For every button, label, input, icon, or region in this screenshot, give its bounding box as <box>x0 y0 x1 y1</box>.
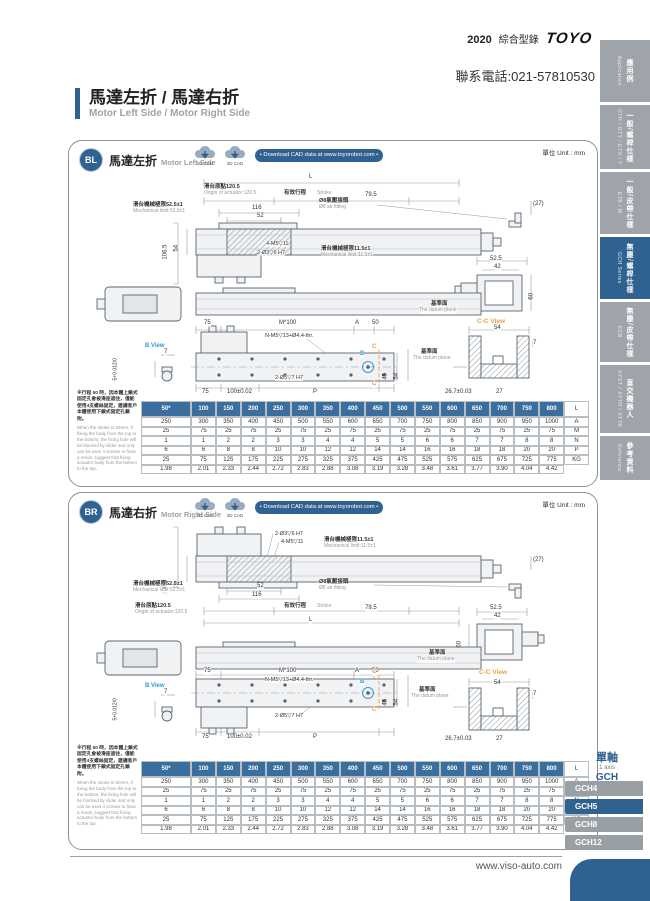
table-cell: 3.90 <box>490 825 515 835</box>
unit-label: 單位 Unit : mm <box>542 147 585 157</box>
mech-limit-11-en: Mechanical limit:11.5±1 <box>324 544 376 550</box>
table-cell: 16 <box>415 806 440 816</box>
table-cell: 675 <box>490 455 515 465</box>
mech-limit-52-en: Mechanical limit:52.5±1 <box>133 588 185 594</box>
table-cell: 75 <box>340 427 365 437</box>
toyo-logo: TOYO <box>545 30 594 47</box>
dim-27-paren: (27) <box>533 557 544 564</box>
tab-gth-gty-eth-y[interactable]: GTH / GTY / ETH / Y 一般/螺桿仕樣 <box>600 105 650 169</box>
cc-view-label: C-C View <box>479 669 507 676</box>
table-cell: 725 <box>514 455 539 465</box>
table-cell: 3 <box>291 796 316 806</box>
contact-phone: 聯系電話:021-57810530 <box>456 66 595 85</box>
series-menu-title: 單軸 1 axis GCH <box>568 752 646 783</box>
c-marker-top: C <box>372 344 376 351</box>
table-cell: 75 <box>490 787 515 797</box>
dim-P: P <box>313 734 317 741</box>
table-cell: 75 <box>241 427 266 437</box>
dim-52: 52 <box>257 583 264 590</box>
table-cell: 6 <box>141 806 191 816</box>
table-cell: 100 <box>191 761 216 777</box>
table-cell: 25 <box>141 427 191 437</box>
table-cell: 1 <box>141 796 191 806</box>
mech-limit-11-en: Mechanical limit:11.5±1 <box>321 253 373 259</box>
dim-L: L <box>309 174 312 181</box>
table-cell: 325 <box>315 815 340 825</box>
table-cell: 450 <box>365 401 390 417</box>
table-cell: 750 <box>415 777 440 787</box>
table-cell: 425 <box>365 815 390 825</box>
table-cell: 25 <box>415 427 440 437</box>
footer-divider <box>70 856 562 857</box>
table-cell: 8 <box>514 436 539 446</box>
table-cell: 8 <box>514 796 539 806</box>
table-cell: 775 <box>539 455 564 465</box>
table-cell: 400 <box>340 761 365 777</box>
table-cell: 8 <box>241 806 266 816</box>
table-cell: 475 <box>390 455 415 465</box>
hole-2o3: 2-Ø3▽6 H7 <box>257 250 285 256</box>
table-cell: 175 <box>241 455 266 465</box>
table-cell: 75 <box>191 787 216 797</box>
table-cell: 25 <box>266 427 291 437</box>
table-cell: 2.88 <box>315 465 340 475</box>
tab-label-en: ETB / M <box>616 192 622 214</box>
c-marker-top: C <box>372 669 376 676</box>
dim-7-bview: 7 <box>164 689 167 696</box>
table-cell: 2.33 <box>216 465 241 475</box>
dim-L: L <box>309 617 312 624</box>
table-cell: 20 <box>514 806 539 816</box>
table-cell: 675 <box>490 815 515 825</box>
table-cell: 7 <box>465 796 490 806</box>
table-cell: 250 <box>141 777 191 787</box>
table-cell: 2 <box>241 796 266 806</box>
table-cell: 850 <box>465 777 490 787</box>
table-cell: 4 <box>340 436 365 446</box>
tab-ecb[interactable]: ECB 無塵/皮帶仕樣 <box>600 302 650 362</box>
table-cell: 800 <box>440 417 465 427</box>
cloud-download-icon <box>192 497 218 512</box>
table-cell: 3.19 <box>365 465 390 475</box>
table-cell: 150 <box>216 401 241 417</box>
hole-2o5: 2-Ø5▽7 H7 <box>275 375 303 381</box>
table-cell: 18 <box>465 806 490 816</box>
table-cell: 325 <box>315 455 340 465</box>
table-cell: 75 <box>390 427 415 437</box>
table-cell: 800 <box>539 401 564 417</box>
dim-54-cc: 54 <box>494 680 501 687</box>
gch4-button[interactable]: GCH4 <box>565 781 643 796</box>
table-cell: 3.77 <box>465 825 490 835</box>
hole-2o5: 2-Ø5▽7 H7 <box>275 713 303 719</box>
table-cell: 3.08 <box>340 825 365 835</box>
tab-label-en: XYGT / XYTH / XYTB <box>616 370 622 427</box>
table-cell: 800 <box>539 761 564 777</box>
table-cell: 6 <box>415 436 440 446</box>
dim-45: 45 <box>382 373 389 380</box>
table-cell: 2.44 <box>241 465 266 475</box>
table-cell: 650 <box>465 401 490 417</box>
table-cell: 950 <box>514 417 539 427</box>
cad-3d-download[interactable]: 3D CAD <box>219 497 251 518</box>
table-cell: 550 <box>415 761 440 777</box>
footer-website: www.viso-auto.com <box>420 861 562 872</box>
table-cell: 600 <box>440 761 465 777</box>
table-cell: 8 <box>539 436 564 446</box>
table-cell: 300 <box>291 761 316 777</box>
dim-54-cc: 54 <box>494 325 501 332</box>
stroke-table: 有效行程Stroke50*100150200250300350400450500… <box>141 761 589 834</box>
table-cell: 75 <box>241 787 266 797</box>
datum-plane-1-en: The datum plane <box>419 308 457 314</box>
stroke-label-zh: 有效行程 <box>284 603 306 609</box>
table-cell: 18 <box>465 446 490 456</box>
table-cell: 450 <box>266 777 291 787</box>
table-cell: 75 <box>440 787 465 797</box>
table-cell: 25 <box>141 815 191 825</box>
table-cell: 6 <box>191 806 216 816</box>
table-cell: 900 <box>490 417 515 427</box>
stroke-note: ※行程 50 時，因本體上鎖式固定孔會被滑座遮住，僅能使用4支螺絲固定，建議客戶… <box>77 746 139 827</box>
tab-label-zh: 一般/皮帶仕樣 <box>624 178 634 229</box>
table-cell: 650 <box>465 761 490 777</box>
table-cell: 525 <box>415 815 440 825</box>
stroke-note-en: When the stroke is 50mm, if fixing the b… <box>77 425 139 472</box>
table-cell: 75 <box>490 427 515 437</box>
table-cell: 75 <box>440 427 465 437</box>
table-cell: 3.61 <box>440 465 465 475</box>
table-cell: 4.42 <box>539 465 564 475</box>
dim-7-cc: 7 <box>533 340 536 347</box>
stroke-note-en: When the stroke is 50mm, if fixing the b… <box>77 780 139 827</box>
catalog-name: 綜合型錄 <box>499 31 539 46</box>
table-cell: 2.01 <box>191 825 216 835</box>
cad-2d-download[interactable]: 2D CAD <box>189 497 221 518</box>
download-cad-button[interactable]: • Download CAD data at www.toyorobot.com… <box>255 149 383 162</box>
table-cell: 1.98 <box>141 465 191 475</box>
table-cell: 1 <box>191 796 216 806</box>
dim-79-5: 79.5 <box>365 192 377 199</box>
table-cell: 1.98 <box>141 825 191 835</box>
table-cell: 275 <box>291 455 316 465</box>
table-cell: 25 <box>141 787 191 797</box>
table-cell: 1000 <box>539 777 564 787</box>
table-cell: 2.72 <box>266 465 291 475</box>
table-cell: 8 <box>216 806 241 816</box>
table-cell: 3.28 <box>390 465 415 475</box>
cad-2d-download[interactable]: 2D CAD <box>189 145 221 166</box>
cloud-download-icon <box>192 145 218 160</box>
table-cell: 100 <box>191 401 216 417</box>
tab-label-zh: 無塵/皮帶仕樣 <box>624 307 634 358</box>
download-cad-button[interactable]: • Download CAD data at www.toyorobot.com… <box>255 501 383 514</box>
dim-100: 100±0.02 <box>227 389 252 396</box>
table-cell: 12 <box>315 446 340 456</box>
table-cell: 600 <box>440 401 465 417</box>
tab-label-zh: 直交機器人 <box>624 379 634 419</box>
page-title-zh: 馬達左折 / 馬達右折 <box>89 88 250 108</box>
dim-45: 45 <box>382 699 389 706</box>
dim-75-top: 75 <box>204 668 211 675</box>
table-cell: 700 <box>490 401 515 417</box>
table-cell: 1 <box>191 436 216 446</box>
table-cell: 4 <box>340 796 365 806</box>
tab-label-en: GTH / GTY / ETH / Y <box>616 109 622 165</box>
table-cell: 725 <box>514 815 539 825</box>
series-title-zh: 單軸 <box>568 752 646 765</box>
origin-label-en: Origin of actuator:120.5 <box>204 191 256 197</box>
table-cell: 16 <box>440 806 465 816</box>
table-cell: 2.83 <box>291 465 316 475</box>
section-motor-right: BR 馬達右折Motor Right Side 2D CAD 3D CAD • … <box>68 492 598 850</box>
table-cell: 700 <box>490 761 515 777</box>
table-cell: 500 <box>390 761 415 777</box>
table-cell: 18 <box>490 446 515 456</box>
table-cell: 75 <box>191 455 216 465</box>
table-cell: 2 <box>216 796 241 806</box>
table-cell: 50* <box>141 761 191 777</box>
table-cell: 75 <box>291 787 316 797</box>
dim-A: A <box>355 320 359 327</box>
air-fitting-en: Ø8 air fitting <box>319 205 346 211</box>
dim-52-5: 52.5 <box>490 605 502 612</box>
table-cell: 14 <box>390 446 415 456</box>
table-cell: 550 <box>315 777 340 787</box>
tab-label-en: Application <box>616 56 622 86</box>
table-cell: 75 <box>390 787 415 797</box>
table-cell: 150 <box>216 761 241 777</box>
table-cell: 550 <box>315 417 340 427</box>
table-cell: 12 <box>315 806 340 816</box>
table-cell: 2.33 <box>216 825 241 835</box>
table-cell: 5 <box>365 796 390 806</box>
table-cell: 750 <box>514 401 539 417</box>
table-cell: 3.90 <box>490 465 515 475</box>
dim-tolerance: 5+0.012/0 <box>114 358 120 380</box>
b-marker: B <box>360 351 364 358</box>
section-motor-left: BL 馬達左折Motor Left Side 2D CAD 3D CAD • D… <box>68 140 598 487</box>
table-cell: 75 <box>539 427 564 437</box>
tab-label-en: Reference <box>616 444 622 472</box>
tab-reference[interactable]: Reference 參考資料 <box>600 436 650 480</box>
table-cell: 500 <box>291 777 316 787</box>
table-cell: 500 <box>390 401 415 417</box>
gch5-button[interactable]: GCH5 <box>565 799 643 814</box>
table-cell: 525 <box>415 455 440 465</box>
cad-3d-label: 3D CAD <box>219 513 251 518</box>
table-cell: 575 <box>440 815 465 825</box>
table-cell: 300 <box>291 401 316 417</box>
table-cell: 25 <box>266 787 291 797</box>
origin-label-en: Origin of actuator:120.5 <box>135 610 187 616</box>
datum-plane-1-en: The datum plane <box>417 657 455 663</box>
table-cell: 20 <box>539 446 564 456</box>
table-cell: 375 <box>340 815 365 825</box>
dim-m100: M*100 <box>279 320 296 327</box>
table-cell: 8 <box>216 446 241 456</box>
table-cell: 25 <box>315 787 340 797</box>
table-cell: 300 <box>191 417 216 427</box>
table-cell: 2.44 <box>241 825 266 835</box>
table-cell: 225 <box>266 815 291 825</box>
table-cell: 7 <box>490 796 515 806</box>
dim-50: 50 <box>372 320 379 327</box>
hole-2o3: 2-Ø3▽6 H7 <box>275 531 303 537</box>
stroke-note-zh: ※行程 50 時，因本體上鎖式固定孔會被滑座遮住，僅能使用4支螺絲固定，建議客戶… <box>77 391 139 423</box>
table-cell: 2 <box>216 436 241 446</box>
table-cell: 3 <box>266 796 291 806</box>
table-cell: 700 <box>390 417 415 427</box>
table-cell: 25 <box>365 787 390 797</box>
b-view-label: B View <box>145 343 165 350</box>
stroke-label-en: Stroke <box>317 604 331 610</box>
table-cell: 450 <box>365 761 390 777</box>
tab-xygt-xyth-xytb[interactable]: XYGT / XYTH / XYTB 直交機器人 <box>600 365 650 433</box>
table-cell: 10 <box>291 806 316 816</box>
table-cell: 16 <box>415 446 440 456</box>
table-cell: 3 <box>266 436 291 446</box>
br-title-zh: 馬達右折 <box>109 506 157 520</box>
table-cell: 8 <box>241 446 266 456</box>
table-cell: 850 <box>465 417 490 427</box>
table-cell: 1000 <box>539 417 564 427</box>
table-cell: 12 <box>340 446 365 456</box>
table-cell: 20 <box>539 806 564 816</box>
dim-60: 60 <box>456 641 463 648</box>
dim-75-top: 75 <box>204 320 211 327</box>
gch12-button[interactable]: GCH12 <box>565 835 643 850</box>
catalog-year: 2020 <box>467 34 491 46</box>
table-cell: 25 <box>216 787 241 797</box>
dim-116: 116 <box>252 205 262 212</box>
table-cell: 4.42 <box>539 825 564 835</box>
gch8-button[interactable]: GCH8 <box>565 817 643 832</box>
table-cell: 75 <box>291 427 316 437</box>
tab-application[interactable]: Application 應用例 <box>600 40 650 102</box>
unit-label: 單位 Unit : mm <box>542 499 585 509</box>
table-cell: 2.01 <box>191 465 216 475</box>
dim-tolerance: 5+0.012/0 <box>114 698 120 720</box>
catalog-header: 2020 綜合型錄 TOYO <box>467 30 592 47</box>
stroke-label-zh: 有效行程 <box>284 190 306 196</box>
table-cell: 475 <box>390 815 415 825</box>
tab-label-zh: 應用例 <box>624 59 634 83</box>
dim-60: 60 <box>528 293 535 300</box>
tab-label-zh: 無塵/螺桿仕樣 <box>624 243 634 294</box>
hole-nm5: N-M5▽13+Ø4.4-thr. <box>265 677 313 683</box>
c-marker-bottom: C <box>372 707 376 714</box>
cad-2d-label: 2D CAD <box>189 513 221 518</box>
table-cell: 5 <box>390 436 415 446</box>
table-cell: 275 <box>291 815 316 825</box>
table-cell: 350 <box>315 401 340 417</box>
catalog-page: 2020 綜合型錄 TOYO 聯系電話:021-57810530 馬達左折 / … <box>0 0 650 901</box>
b-marker: B <box>360 679 364 686</box>
series-title-en: 1 axis <box>568 765 646 772</box>
cad-3d-download[interactable]: 3D CAD <box>219 145 251 166</box>
bl-title-zh: 馬達左折 <box>109 154 157 168</box>
table-cell: 125 <box>216 455 241 465</box>
table-cell: 300 <box>191 777 216 787</box>
dim-7-cc: 7 <box>533 691 536 698</box>
table-cell: 25 <box>365 427 390 437</box>
table-cell: 2.88 <box>315 825 340 835</box>
dim-26-7: 26.7±0.03 <box>445 389 472 396</box>
air-fitting-en: Ø8 air fitting <box>319 586 346 592</box>
table-cell: 75 <box>539 787 564 797</box>
tab-label-en: ECB <box>616 326 622 338</box>
table-cell: 175 <box>241 815 266 825</box>
table-cell: 14 <box>390 806 415 816</box>
stroke-note: ※行程 50 時，因本體上鎖式固定孔會被滑座遮住，僅能使用4支螺絲固定，建議客戶… <box>77 391 139 472</box>
table-cell: 500 <box>291 417 316 427</box>
tab-etb-m[interactable]: ETB / M 一般/皮帶仕樣 <box>600 172 650 234</box>
table-cell: 3.61 <box>440 825 465 835</box>
table-cell: 75 <box>340 787 365 797</box>
dim-54-b: 54 <box>393 373 400 380</box>
table-cell: 3.48 <box>415 825 440 835</box>
table-cell: 6 <box>440 436 465 446</box>
table-cell: 6 <box>191 446 216 456</box>
c-marker-bottom: C <box>372 381 376 388</box>
table-cell: 650 <box>365 777 390 787</box>
table-cell: 25 <box>514 427 539 437</box>
table-cell: 750 <box>415 417 440 427</box>
dim-79-5: 79.5 <box>365 605 377 612</box>
table-cell: L <box>564 401 589 417</box>
br-drawing <box>69 521 597 767</box>
dim-75-bottom: 75 <box>202 389 209 396</box>
table-cell: 3 <box>291 436 316 446</box>
table-cell: 3.48 <box>415 465 440 475</box>
table-cell: 6 <box>141 446 191 456</box>
table-cell: N <box>564 436 589 446</box>
table-cell: 625 <box>465 455 490 465</box>
table-cell: 25 <box>465 427 490 437</box>
dim-A: A <box>355 668 359 675</box>
table-cell: 250 <box>266 401 291 417</box>
table-cell: 4.04 <box>514 825 539 835</box>
table-cell: 575 <box>440 455 465 465</box>
table-cell: P <box>564 446 589 456</box>
cad-2d-label: 2D CAD <box>189 161 221 166</box>
table-cell: 125 <box>216 815 241 825</box>
cloud-download-icon <box>222 145 248 160</box>
hole-nm5: N-M5▽13+Ø4.4-thr. <box>265 333 313 339</box>
table-cell: 3.08 <box>340 465 365 475</box>
dim-42: 42 <box>494 264 501 271</box>
table-cell: 400 <box>340 401 365 417</box>
datum-plane-2-en: The datum plane <box>411 694 449 700</box>
table-cell: 950 <box>514 777 539 787</box>
table-cell: 25 <box>514 787 539 797</box>
table-cell: 25 <box>415 787 440 797</box>
table-cell: KG <box>564 455 589 465</box>
dim-116: 116 <box>252 592 262 599</box>
tab-gch-series[interactable]: GCH Series 無塵/螺桿仕樣 <box>600 237 650 299</box>
table-cell: 50* <box>141 401 191 417</box>
tab-label-zh: 參考資料 <box>624 442 634 474</box>
table-cell: 800 <box>440 777 465 787</box>
table-cell: 20 <box>514 446 539 456</box>
table-cell: 10 <box>266 446 291 456</box>
table-cell: 4 <box>315 796 340 806</box>
table-cell: 2 <box>241 436 266 446</box>
table-cell: 4.04 <box>514 465 539 475</box>
table-cell: 600 <box>340 777 365 787</box>
table-cell: 400 <box>241 777 266 787</box>
